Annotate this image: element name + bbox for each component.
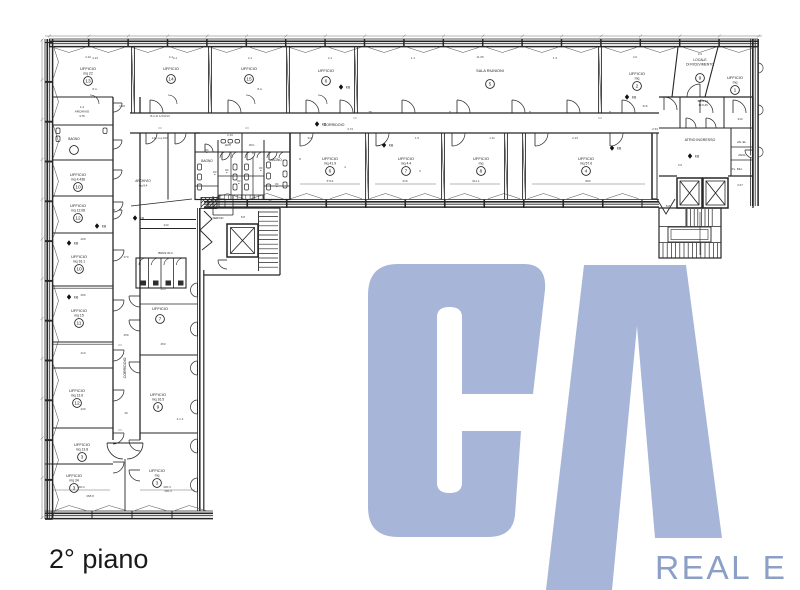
svg-text:BAGNO: BAGNO (68, 137, 80, 141)
svg-text:911.1: 911.1 (472, 179, 480, 183)
svg-text:8.8: 8.8 (241, 215, 246, 219)
svg-text:1.3: 1.3 (553, 56, 558, 60)
svg-text:413: 413 (160, 287, 165, 291)
svg-text:KB: KB (74, 296, 79, 300)
svg-text:410: 410 (80, 351, 85, 355)
svg-text:CORRIDOIO: CORRIDOIO (123, 357, 127, 378)
svg-text:UFFICIO: UFFICIO (150, 392, 166, 397)
svg-text:9: 9 (699, 76, 702, 82)
svg-text:450: 450 (80, 293, 85, 297)
svg-text:UFFICIO: UFFICIO (152, 306, 168, 311)
svg-text:3: 3 (81, 455, 84, 461)
svg-text:mq 4.4: mq 4.4 (401, 162, 411, 166)
svg-text:UFFICIO: UFFICIO (241, 66, 257, 71)
svg-text:1.18: 1.18 (119, 104, 125, 108)
svg-text:mq 9.4: mq 9.4 (139, 184, 148, 188)
svg-text:318: 318 (307, 136, 312, 140)
svg-text:mq 16.5: mq 16.5 (152, 398, 164, 402)
svg-text:UFFICIO: UFFICIO (70, 172, 86, 177)
svg-text:KB: KB (74, 242, 79, 246)
svg-text:SERVIZI: SERVIZI (213, 216, 224, 220)
svg-text:UFFICIO: UFFICIO (71, 254, 87, 259)
svg-text:3.6: 3.6 (678, 163, 683, 167)
svg-text:4.1.3: 4.1.3 (177, 417, 184, 421)
svg-text:1.5: 1.5 (415, 136, 420, 140)
svg-text:2.16: 2.16 (227, 133, 233, 137)
svg-text:219: 219 (402, 179, 407, 183)
svg-text:4.1: 4.1 (248, 56, 253, 60)
svg-text:4.10: 4.10 (85, 55, 91, 59)
svg-text:893: 893 (585, 179, 590, 183)
svg-text:mq 4.438: mq 4.438 (71, 178, 85, 182)
svg-text:KB: KB (322, 123, 327, 127)
svg-text:14: 14 (168, 77, 174, 83)
svg-text:UFFICIO: UFFICIO (473, 156, 489, 161)
svg-text:CORRIDOIO: CORRIDOIO (324, 123, 345, 127)
svg-text:14.5.45: 14.5.45 (698, 103, 708, 107)
svg-text:4: 4 (585, 169, 588, 175)
svg-text:mq 22: mq 22 (83, 72, 93, 76)
svg-text:15: 15 (246, 77, 252, 83)
svg-text:4.6: 4.6 (633, 55, 638, 59)
svg-text:UFFICIO: UFFICIO (149, 468, 165, 473)
svg-text:10: 10 (76, 267, 82, 273)
svg-text:4.74: 4.74 (347, 127, 353, 131)
svg-text:2° piano: 2° piano (49, 544, 148, 574)
svg-text:KB: KB (140, 217, 145, 221)
svg-text:1.1: 1.1 (411, 56, 416, 60)
svg-text:1.4: 1.4 (80, 105, 84, 109)
svg-text:UFFICIO: UFFICIO (163, 66, 179, 71)
svg-text:KB: KB (632, 96, 637, 100)
svg-text:KB: KB (617, 147, 622, 151)
svg-text:430: 430 (80, 407, 85, 411)
svg-text:BAGNO: BAGNO (201, 159, 213, 163)
svg-text:344: 344 (737, 117, 742, 121)
svg-text:470: 470 (123, 255, 128, 259)
svg-text:SALA RIUNIONI: SALA RIUNIONI (476, 69, 504, 73)
svg-text:13: 13 (85, 79, 91, 85)
svg-text:UFFICIO: UFFICIO (69, 388, 85, 393)
svg-text:4.76: 4.76 (79, 114, 85, 118)
svg-text:400: 400 (80, 237, 85, 241)
svg-text:UFFICIO: UFFICIO (398, 156, 414, 161)
svg-text:8.A.: 8.A. (92, 87, 98, 91)
svg-text:AN. EL.: AN. EL. (737, 140, 747, 144)
svg-text:W.C.: W.C. (249, 143, 255, 147)
svg-text:LOCALE: LOCALE (693, 58, 707, 62)
svg-text:11: 11 (77, 321, 82, 327)
svg-text:UFFICIO: UFFICIO (322, 156, 338, 161)
svg-text:mq 13.6: mq 13.6 (71, 394, 83, 398)
svg-text:243: 243 (163, 223, 168, 227)
svg-text:mq 34: mq 34 (69, 479, 79, 483)
svg-text:mq: mq (733, 81, 738, 85)
svg-text:5: 5 (489, 82, 492, 88)
svg-text:35: 35 (268, 199, 272, 203)
svg-text:11.05: 11.05 (476, 55, 484, 59)
svg-text:mq 41.9: mq 41.9 (324, 162, 336, 166)
svg-text:mq 15: mq 15 (74, 314, 84, 318)
svg-text:4.1: 4.1 (173, 56, 178, 60)
svg-text:316: 316 (642, 104, 647, 108)
svg-text:mq 13.8: mq 13.8 (76, 448, 88, 452)
svg-text:2.6: 2.6 (698, 52, 703, 56)
svg-text:300.3: 300.3 (164, 489, 172, 493)
svg-text:8.8: 8.8 (666, 204, 671, 208)
svg-text:500.2: 500.2 (77, 485, 85, 489)
svg-text:Ps. BEL: Ps. BEL (732, 167, 743, 171)
svg-text:3: 3 (73, 486, 76, 492)
svg-text:UFFICIO: UFFICIO (318, 68, 334, 73)
svg-text:UFFICIO: UFFICIO (80, 66, 96, 71)
svg-text:5713: 5713 (327, 179, 334, 183)
svg-text:B.2-D 1/2/3/13: B.2-D 1/2/3/13 (150, 114, 170, 118)
svg-text:2.13: 2.13 (572, 136, 578, 140)
svg-text:DI RICEVIMENTO: DI RICEVIMENTO (686, 63, 714, 67)
svg-text:12: 12 (75, 216, 81, 222)
svg-text:mq: mq (479, 162, 484, 166)
svg-text:8: 8 (480, 169, 483, 175)
svg-text:4.1: 4.1 (328, 56, 333, 60)
svg-text:REAL E: REAL E (655, 550, 787, 587)
svg-text:ATRIO INGRESSO: ATRIO INGRESSO (685, 138, 716, 142)
svg-text:mq: mq (155, 474, 160, 478)
svg-text:UFFICIO: UFFICIO (66, 473, 82, 478)
svg-text:10: 10 (75, 185, 81, 191)
svg-text:UFFICIO: UFFICIO (629, 71, 645, 76)
svg-text:9: 9 (157, 405, 160, 411)
svg-text:ANOL: ANOL (738, 153, 746, 157)
svg-text:ARCHIVIO: ARCHIVIO (135, 179, 151, 183)
svg-text:KB: KB (102, 225, 107, 229)
svg-text:B06/2 W.C.: B06/2 W.C. (158, 251, 173, 255)
svg-text:UFFICIO: UFFICIO (70, 203, 86, 208)
svg-text:7: 7 (159, 317, 162, 323)
svg-text:368.8: 368.8 (86, 494, 94, 498)
svg-text:1.11: 1.11 (489, 136, 495, 140)
svg-text:3: 3 (156, 481, 159, 487)
svg-text:ANTI: ANTI (225, 143, 232, 147)
svg-text:KB: KB (389, 144, 394, 148)
svg-text:mq 16.1: mq 16.1 (73, 260, 85, 264)
svg-text:459: 459 (123, 333, 128, 337)
svg-text:KB: KB (695, 155, 700, 159)
svg-text:mq 12.08: mq 12.08 (71, 209, 85, 213)
svg-text:6: 6 (329, 169, 332, 175)
svg-text:UFFICIO: UFFICIO (578, 156, 594, 161)
svg-text:8.A.: 8.A. (257, 87, 263, 91)
svg-text:12: 12 (74, 401, 80, 407)
svg-text:7: 7 (405, 169, 408, 175)
svg-text:40: 40 (124, 411, 128, 415)
svg-text:UFFICIO: UFFICIO (74, 442, 90, 447)
svg-text:3.67: 3.67 (737, 183, 743, 187)
svg-text:1: 1 (734, 88, 737, 94)
svg-text:mq: mq (635, 77, 640, 81)
svg-text:UFFICIO: UFFICIO (71, 308, 87, 313)
svg-text:2.63: 2.63 (652, 127, 658, 131)
svg-text:118 mq 23A: 118 mq 23A (152, 136, 168, 140)
svg-text:2: 2 (636, 84, 639, 90)
svg-text:4.13: 4.13 (92, 56, 98, 60)
svg-text:453: 453 (160, 342, 165, 346)
svg-text:KB: KB (346, 86, 351, 90)
svg-text:6: 6 (325, 79, 328, 85)
svg-text:78: 78 (368, 110, 372, 114)
svg-text:UFFICIO: UFFICIO (727, 75, 743, 80)
svg-text:mq 57.6: mq 57.6 (580, 162, 592, 166)
svg-text:ARCHIVIO: ARCHIVIO (75, 110, 90, 114)
